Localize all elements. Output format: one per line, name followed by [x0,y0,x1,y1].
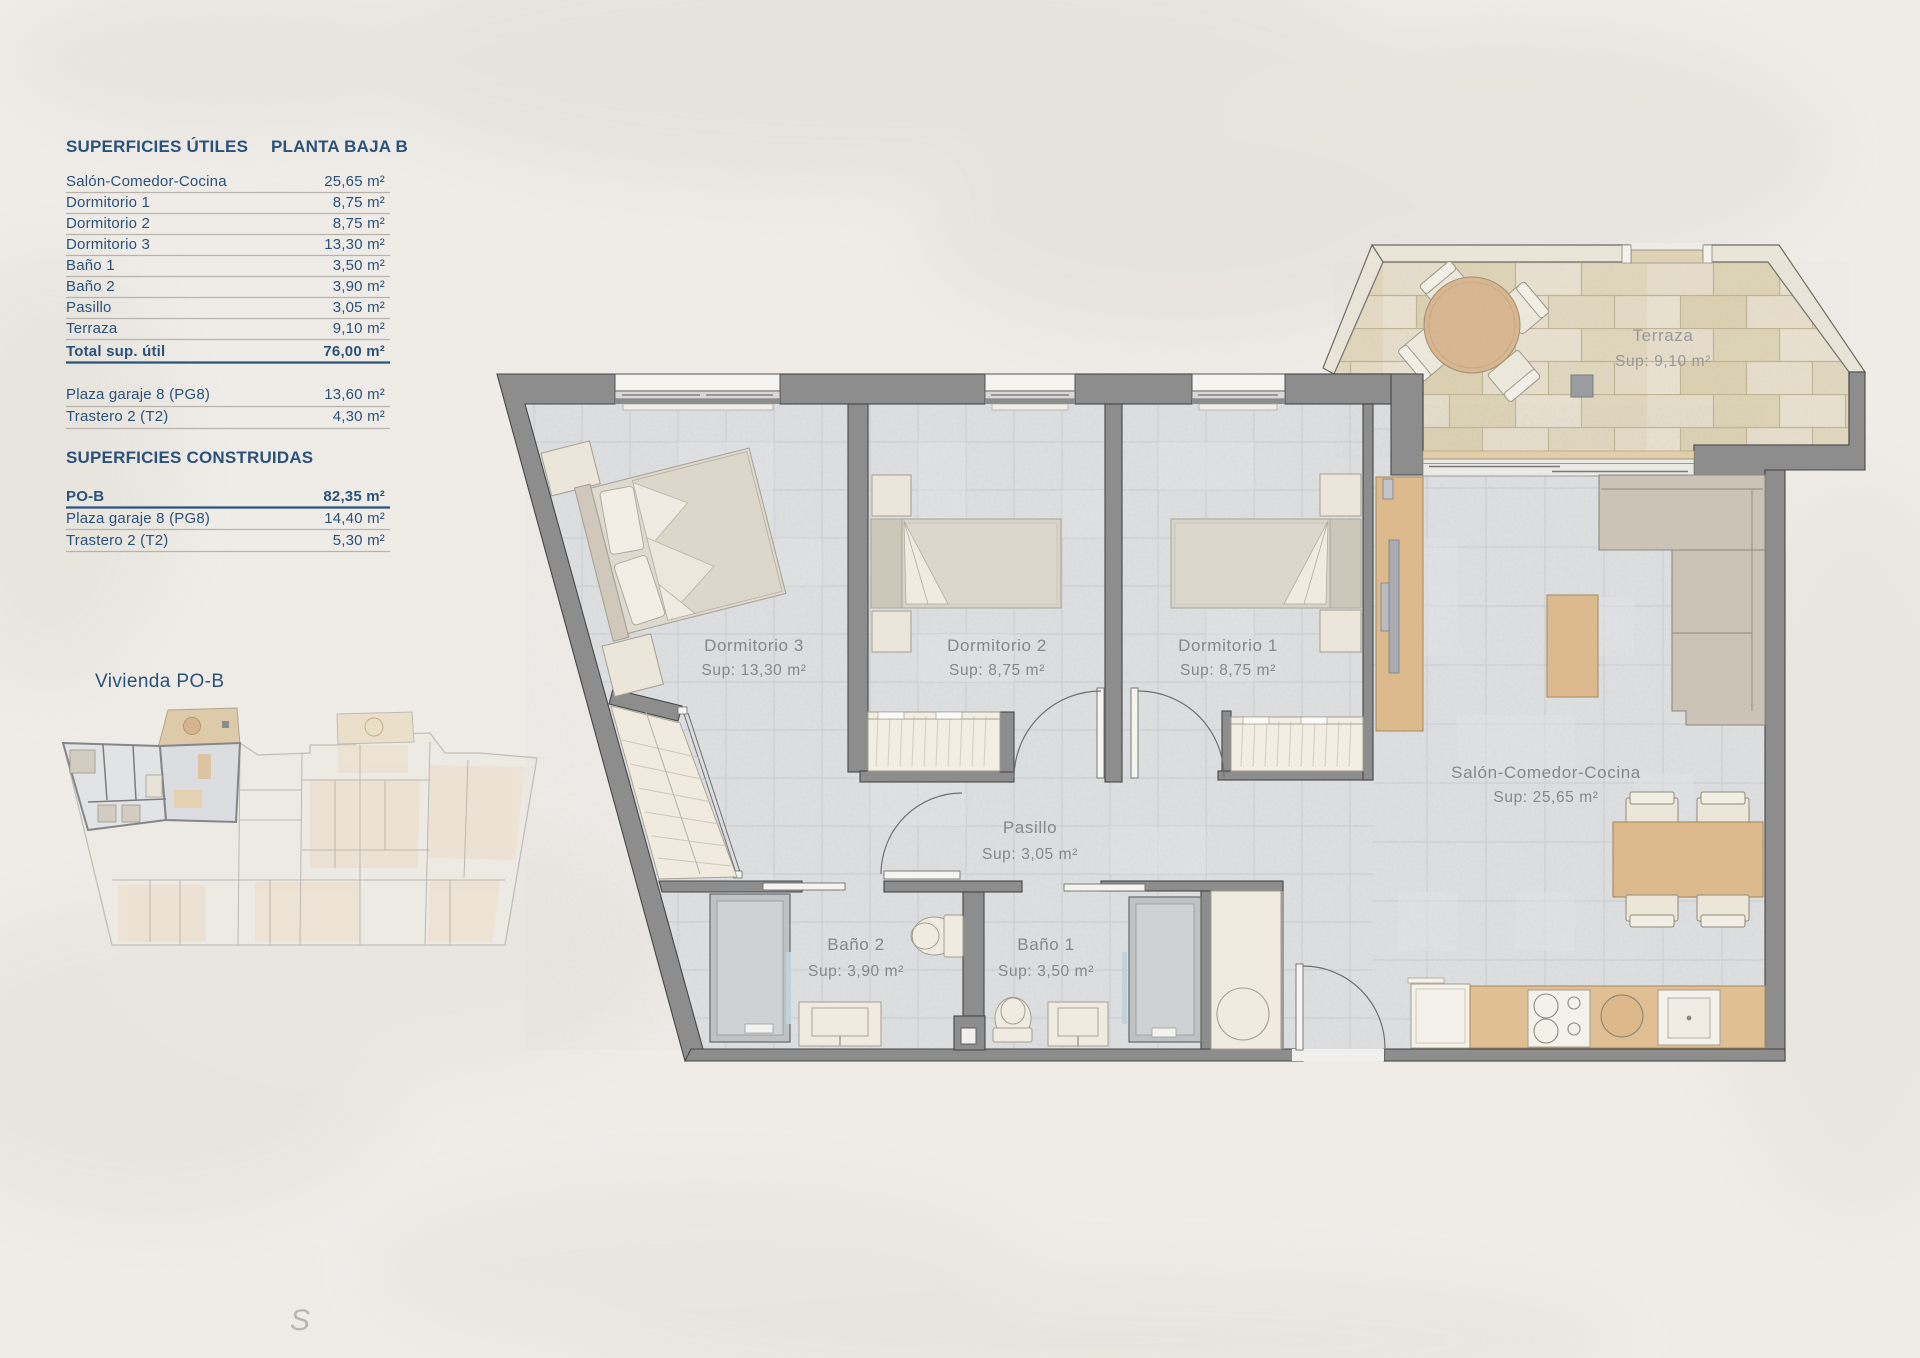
svg-text:4,30 m²: 4,30 m² [333,408,385,425]
svg-text:8,75 m²: 8,75 m² [333,194,385,211]
svg-text:3,90 m²: 3,90 m² [333,278,385,295]
svg-text:5,30 m²: 5,30 m² [333,532,385,549]
svg-text:Vivienda PO-B: Vivienda PO-B [95,671,224,692]
svg-text:Sup: 8,75 m²: Sup: 8,75 m² [1180,662,1276,679]
svg-text:Sup: 8,75 m²: Sup: 8,75 m² [949,662,1045,679]
svg-text:8,75 m²: 8,75 m² [333,215,385,232]
svg-text:Dormitorio 1: Dormitorio 1 [66,194,150,211]
svg-text:Dormitorio 2: Dormitorio 2 [947,636,1047,655]
svg-text:Sup: 3,90 m²: Sup: 3,90 m² [808,963,904,980]
svg-text:76,00 m²: 76,00 m² [323,343,385,360]
svg-text:Baño 2: Baño 2 [66,278,115,295]
svg-text:13,30 m²: 13,30 m² [324,236,385,253]
svg-text:Baño 2: Baño 2 [827,935,884,954]
svg-text:Sup: 25,65 m²: Sup: 25,65 m² [1493,789,1598,806]
svg-text:Salón-Comedor-Cocina: Salón-Comedor-Cocina [66,173,227,190]
svg-text:Dormitorio 3: Dormitorio 3 [66,236,150,253]
svg-text:3,50 m²: 3,50 m² [333,257,385,274]
svg-text:25,65 m²: 25,65 m² [324,173,385,190]
svg-text:Plaza garaje 8 (PG8): Plaza garaje 8 (PG8) [66,510,210,527]
svg-text:S: S [290,1304,310,1337]
svg-text:Pasillo: Pasillo [1003,818,1057,837]
svg-text:Trastero 2 (T2): Trastero 2 (T2) [66,532,168,549]
svg-text:Sup: 3,05 m²: Sup: 3,05 m² [982,846,1078,863]
svg-text:SUPERFICIES CONSTRUIDAS: SUPERFICIES CONSTRUIDAS [66,448,313,467]
svg-text:Dormitorio 1: Dormitorio 1 [1178,636,1278,655]
svg-text:Salón-Comedor-Cocina: Salón-Comedor-Cocina [1451,763,1641,782]
svg-text:Baño 1: Baño 1 [66,257,115,274]
svg-text:PO-B: PO-B [66,488,104,505]
svg-text:82,35 m²: 82,35 m² [323,488,385,505]
svg-text:13,60 m²: 13,60 m² [324,386,385,403]
svg-text:SUPERFICIES ÚTILES: SUPERFICIES ÚTILES [66,137,248,156]
svg-text:14,40 m²: 14,40 m² [324,510,385,527]
svg-text:Sup: 13,30 m²: Sup: 13,30 m² [701,662,806,679]
svg-text:Baño 1: Baño 1 [1017,935,1074,954]
svg-text:Terraza: Terraza [66,320,118,337]
svg-text:Sup: 3,50 m²: Sup: 3,50 m² [998,963,1094,980]
svg-text:9,10 m²: 9,10 m² [333,320,385,337]
svg-text:Trastero 2 (T2): Trastero 2 (T2) [66,408,168,425]
svg-text:3,05 m²: 3,05 m² [333,299,385,316]
svg-text:Dormitorio 2: Dormitorio 2 [66,215,150,232]
svg-text:Plaza garaje 8 (PG8): Plaza garaje 8 (PG8) [66,386,210,403]
svg-text:Total sup. útil: Total sup. útil [66,343,165,360]
svg-text:PLANTA BAJA B: PLANTA BAJA B [271,137,408,156]
svg-text:Dormitorio 3: Dormitorio 3 [704,636,804,655]
svg-text:Pasillo: Pasillo [66,299,112,316]
